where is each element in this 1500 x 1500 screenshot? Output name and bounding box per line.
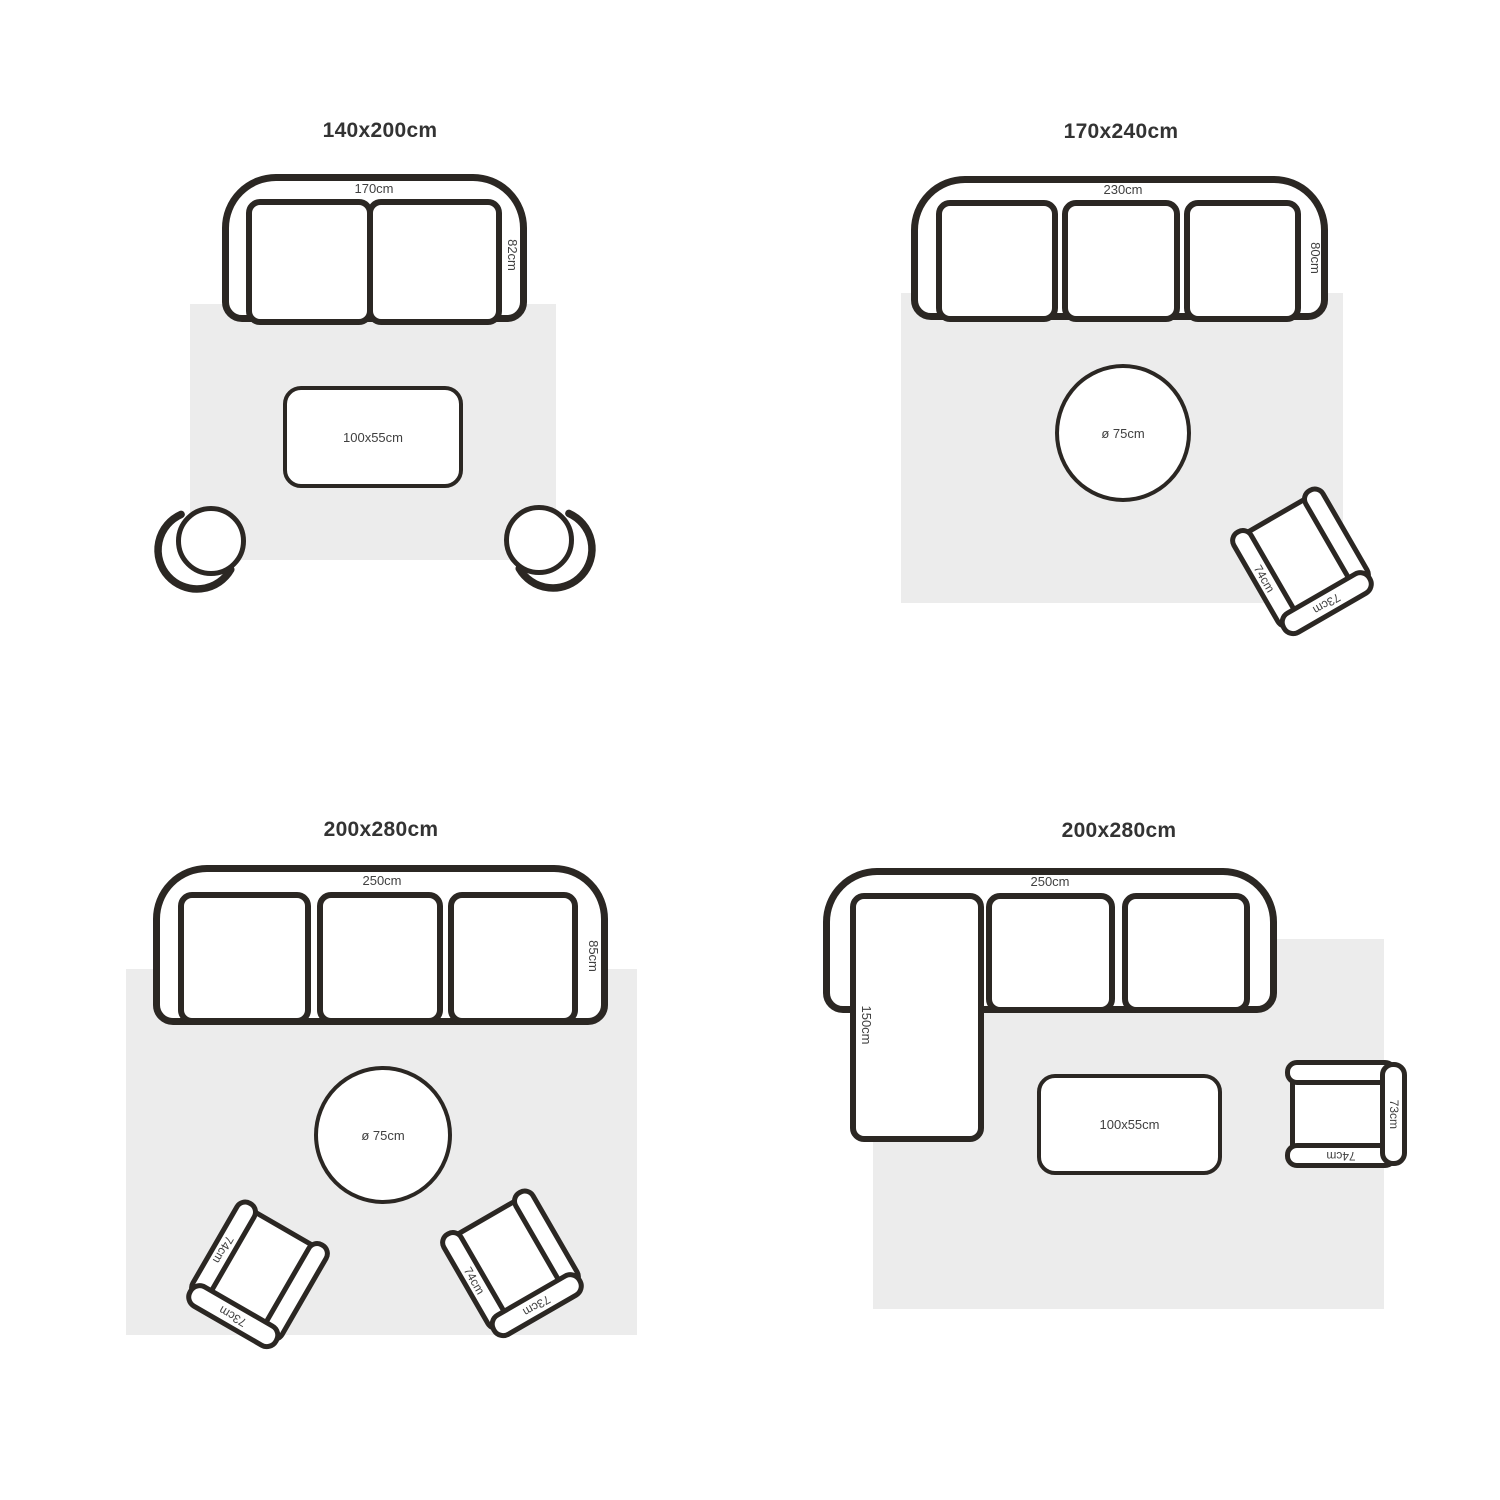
round-table: ø 75cm — [1055, 364, 1191, 502]
coffee-table-size-label: 100x55cm — [1100, 1117, 1160, 1132]
round-table-size-label: ø 75cm — [361, 1128, 404, 1143]
sofa-cushion — [1062, 200, 1180, 322]
layout-title: 140x200cm — [230, 119, 530, 143]
swivel-seat-circle — [507, 508, 572, 573]
sofa-cushion — [367, 199, 502, 325]
armchair-back: 73cm — [1380, 1062, 1407, 1166]
sofa-cushion — [317, 892, 443, 1024]
coffee-table: 100x55cm — [1037, 1074, 1222, 1175]
armchair-arm-label: 74cm — [1298, 1148, 1384, 1164]
chaise-length-label: 150cm — [858, 985, 874, 1065]
sofa-depth-label: 80cm — [1307, 218, 1323, 298]
armchair-back-label: 73cm — [1387, 1099, 1401, 1128]
layout-title: 200x280cm — [969, 819, 1269, 843]
swivel-chair-icon — [503, 499, 599, 595]
sofa-width-label: 230cm — [1023, 182, 1223, 198]
sofa-depth-label: 85cm — [585, 916, 601, 996]
round-table: ø 75cm — [314, 1066, 452, 1204]
sofa-width-label: 250cm — [950, 874, 1150, 890]
sofa-cushion — [1184, 200, 1301, 322]
sofa-depth-label: 82cm — [504, 215, 520, 295]
armchair-back-label: 73cm — [1311, 590, 1343, 617]
armchair: 74cm 73cm — [1285, 1060, 1407, 1168]
swivel-seat-circle — [179, 509, 244, 574]
sofa-cushion — [986, 893, 1115, 1013]
coffee-table-size-label: 100x55cm — [343, 430, 403, 445]
sofa-cushion — [1122, 893, 1250, 1013]
sofa-cushion — [448, 892, 578, 1024]
coffee-table: 100x55cm — [283, 386, 463, 488]
sofa-cushion — [178, 892, 311, 1024]
armchair-back-label: 73cm — [217, 1303, 249, 1330]
sofa-width-label: 170cm — [274, 181, 474, 197]
sofa-width-label: 250cm — [282, 873, 482, 889]
sofa-cushion — [936, 200, 1058, 322]
layout-title: 200x280cm — [231, 818, 531, 842]
swivel-chair-icon — [151, 500, 247, 596]
rug-size-guide-diagram: 140x200cm 170cm 82cm 100x55cm 170x240cm … — [0, 0, 1500, 1500]
sofa-cushion — [246, 199, 373, 325]
round-table-size-label: ø 75cm — [1101, 426, 1144, 441]
layout-title: 170x240cm — [971, 120, 1271, 144]
